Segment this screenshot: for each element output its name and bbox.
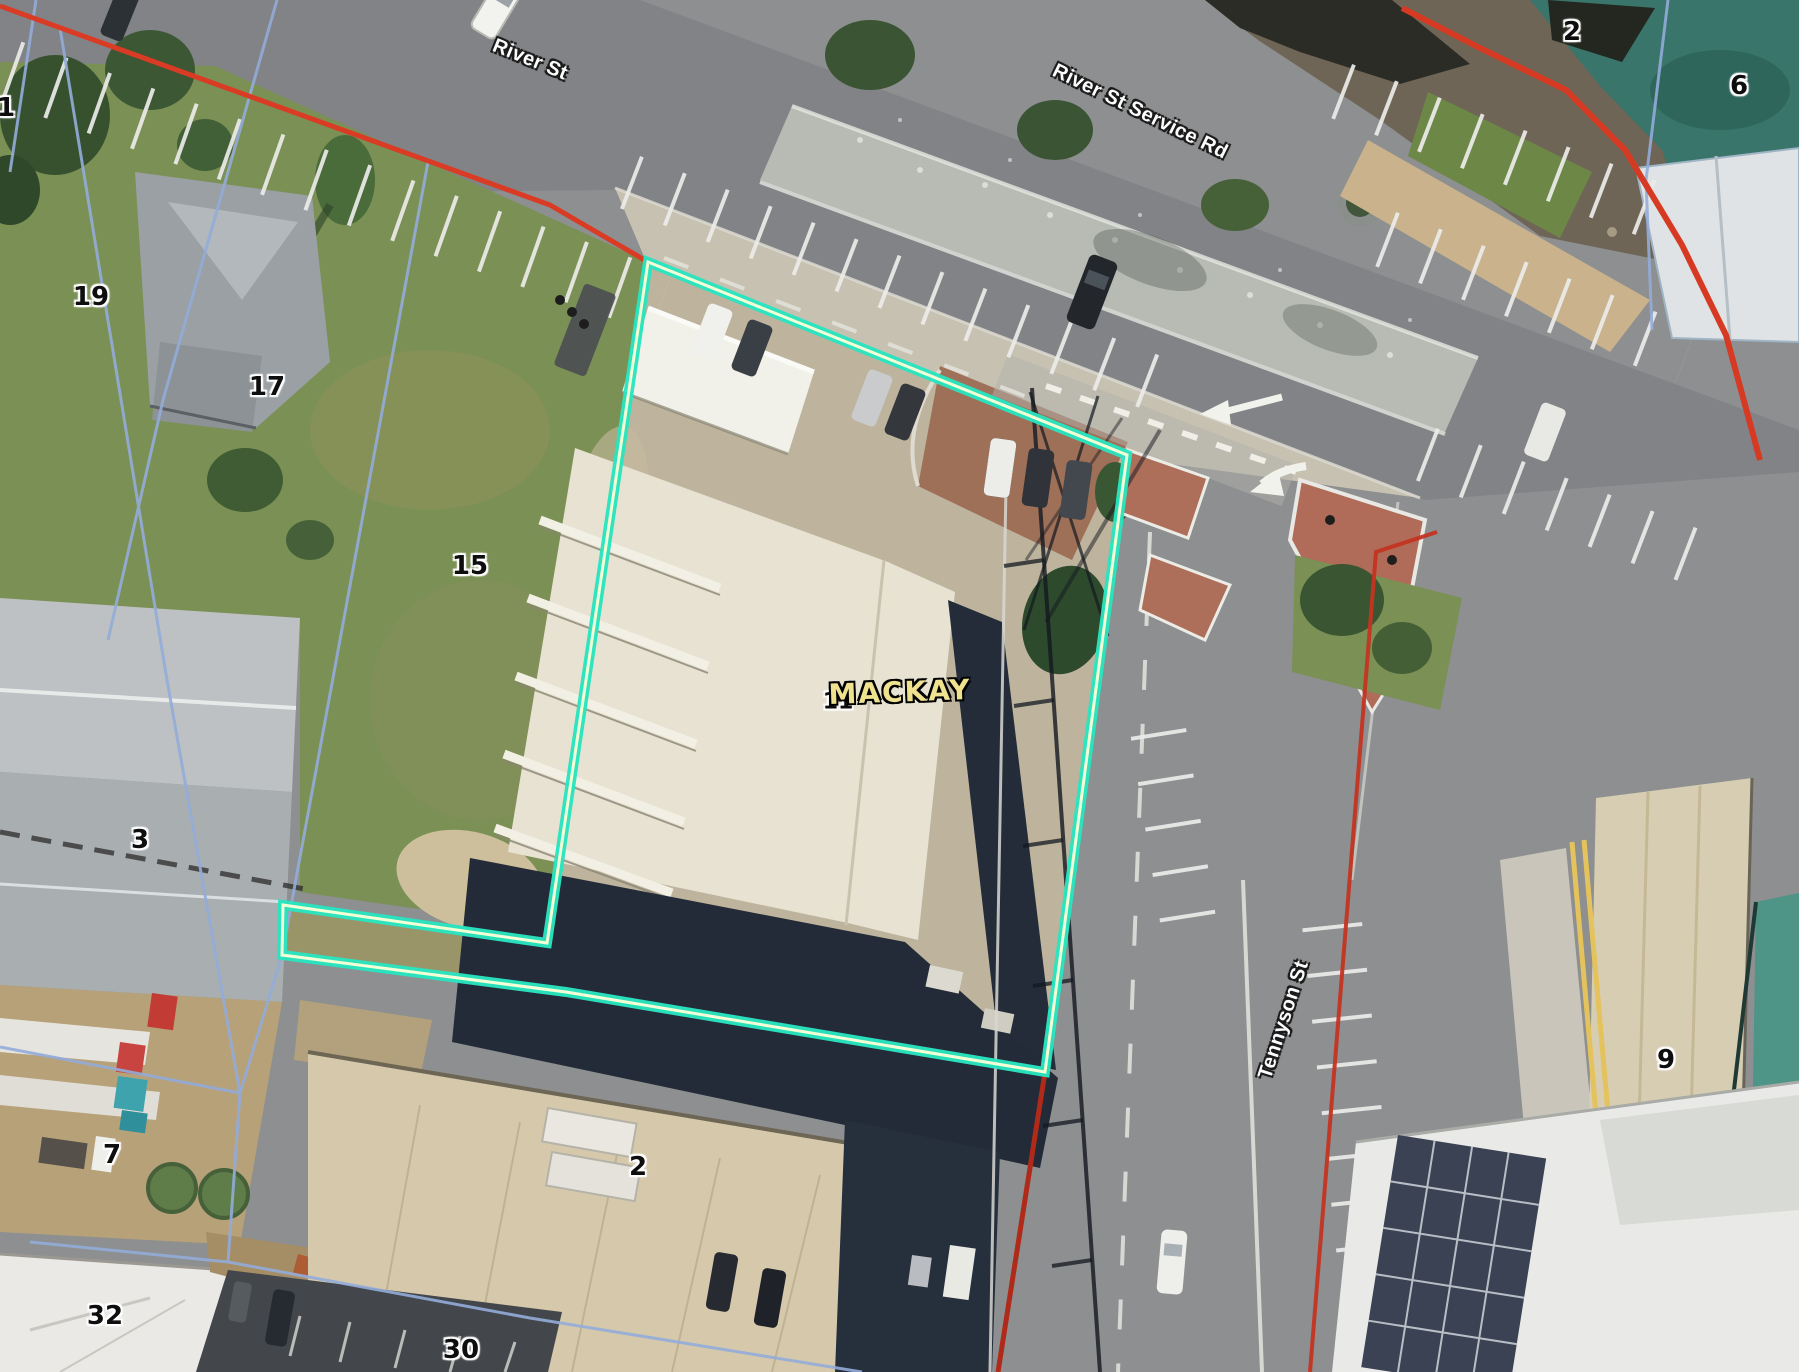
map-canvas[interactable]: River St River St Service Rd Tennyson St… [0,0,1799,1372]
tree [1201,179,1269,231]
tree [1017,100,1093,160]
aerial-imagery [0,0,1799,1372]
sheds-lot3 [0,598,310,1002]
tree [825,20,915,90]
building-lot32 [0,1254,228,1372]
dark-roofs [835,1120,1000,1372]
